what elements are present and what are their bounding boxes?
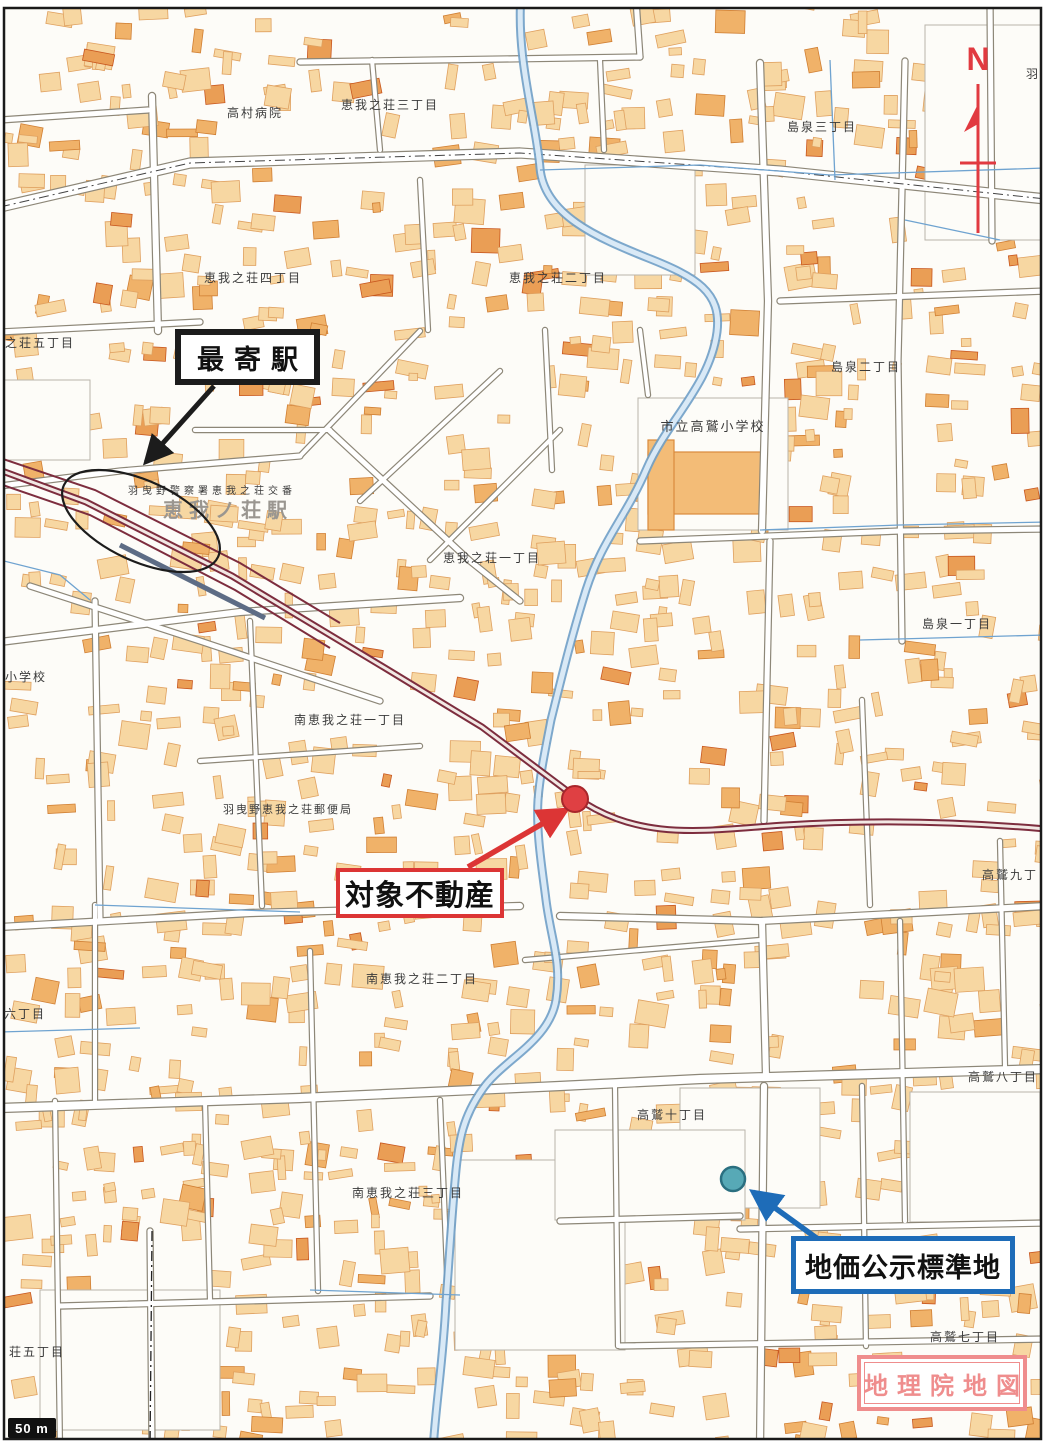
map-place-label: 南恵我之荘三丁目	[352, 1185, 464, 1200]
map-place-label: 恵我之荘二丁目	[509, 271, 607, 285]
map-place-label: 六丁目	[4, 1007, 46, 1021]
map-place-label: 恵我ノ荘駅	[163, 498, 293, 522]
map-place-label: 羽	[1026, 67, 1040, 81]
land-price-marker	[721, 1167, 745, 1191]
map-tiles	[0, 0, 1046, 1447]
map-place-label: 南恵我之荘一丁目	[294, 712, 406, 727]
map-place-label: 島泉三丁目	[787, 119, 857, 134]
nearest-station-label: 最寄駅	[175, 329, 320, 385]
map-place-label: 島泉二丁目	[831, 359, 901, 374]
base-map: 高村病院恵我之荘三丁目島泉三丁目羽恵我之荘四丁目恵我之荘二丁目之荘五丁目島泉二丁…	[0, 0, 1046, 1447]
map-place-label: 恵我之荘四丁目	[204, 271, 302, 285]
map-place-label: 島泉一丁目	[922, 616, 992, 631]
map-place-label: 高村病院	[227, 105, 283, 120]
map-place-label: 荘五丁目	[9, 1345, 65, 1359]
map-place-label: 南恵我之荘二丁目	[366, 971, 478, 986]
subject-property-label: 対象不動産	[336, 868, 504, 918]
land-price-site-label: 地価公示標準地	[791, 1236, 1015, 1294]
map-place-label: 羽曳野警察署恵我之荘交番	[128, 484, 296, 497]
map-place-label: 之荘五丁目	[5, 336, 75, 350]
map-place-label: 恵我之荘三丁目	[341, 98, 439, 112]
map-canvas: 高村病院恵我之荘三丁目島泉三丁目羽恵我之荘四丁目恵我之荘二丁目之荘五丁目島泉二丁…	[0, 0, 1046, 1447]
map-place-label: 高鷲七丁目	[930, 1329, 1000, 1344]
map-place-label: 羽曳野恵我之荘郵便局	[223, 802, 353, 816]
map-place-label: 高鷲九丁	[982, 867, 1038, 882]
map-scale-bar: 50 m	[8, 1418, 56, 1438]
map-place-label: 小学校	[5, 669, 47, 684]
map-place-label: 市立高鷲小学校	[660, 419, 765, 434]
gsi-map-source-label: 地理院地図	[857, 1355, 1027, 1411]
svg-text:N: N	[966, 41, 989, 77]
subject-property-marker	[562, 786, 588, 812]
map-place-label: 高鷲八丁目	[968, 1069, 1038, 1084]
map-place-label: 恵我之荘一丁目	[443, 551, 541, 565]
map-place-label: 高鷲十丁目	[637, 1107, 707, 1122]
